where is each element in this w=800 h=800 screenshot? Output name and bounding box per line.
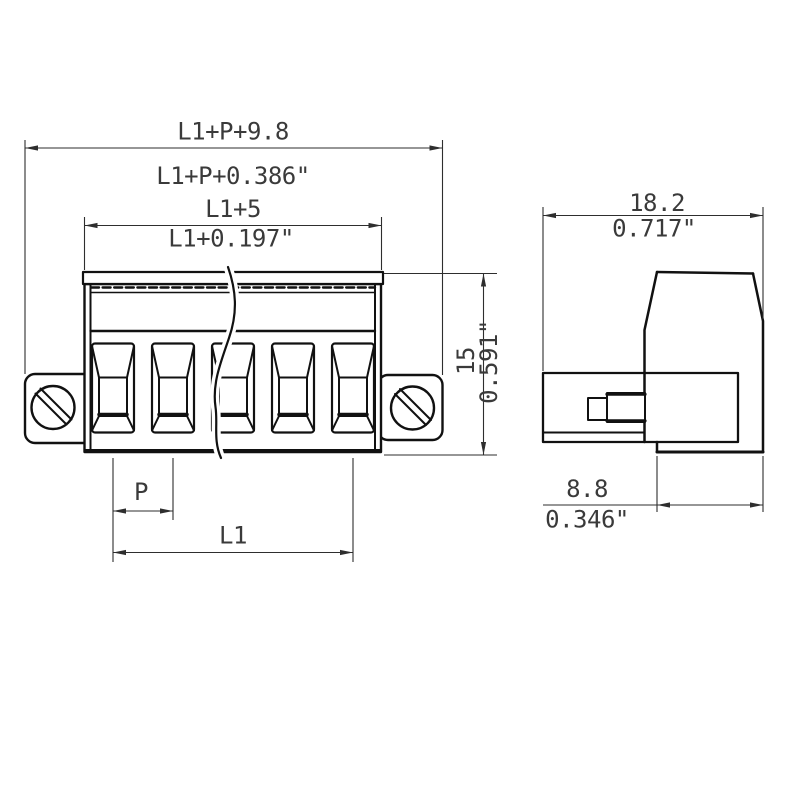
terminal-block-drawing: L1+P+9.8 L1+P+0.386" L1+5 L1+0.197" 15 0…	[0, 0, 800, 800]
dim-label-inner-mm: L1+5	[205, 195, 261, 223]
dim-label-overall-mm: L1+P+9.8	[177, 118, 289, 146]
dim-label-inner-inch: L1+0.197"	[168, 225, 294, 253]
right-screw	[391, 387, 434, 430]
dimension-pitch: P	[113, 458, 173, 562]
dim-label-overall-inch: L1+P+0.386"	[156, 162, 309, 190]
dimension-depth: 8.8 0.346"	[543, 456, 763, 534]
dim-label-width-mm: 18.2	[629, 189, 685, 217]
technical-drawing-page: L1+P+9.8 L1+P+0.386" L1+5 L1+0.197" 15 0…	[0, 0, 800, 800]
front-view: L1+P+9.8 L1+P+0.386" L1+5 L1+0.197" 15 0…	[25, 118, 503, 563]
side-view: 18.2 0.717" 8.8 0.346"	[543, 189, 763, 534]
contact-pin	[588, 393, 645, 422]
dimension-width: 18.2 0.717"	[543, 189, 763, 371]
left-screw	[32, 386, 75, 429]
dimension-housing-length: L1+5 L1+0.197"	[85, 195, 382, 270]
dim-label-depth-mm: 8.8	[566, 475, 608, 503]
dimension-l1: L1	[113, 458, 353, 562]
dim-label-width-inch: 0.717"	[612, 215, 696, 243]
dim-label-l1: L1	[219, 522, 247, 550]
dim-label-height-inch: 0.591"	[475, 320, 503, 404]
dim-label-pitch: P	[134, 478, 148, 506]
dim-label-depth-inch: 0.346"	[545, 506, 629, 534]
